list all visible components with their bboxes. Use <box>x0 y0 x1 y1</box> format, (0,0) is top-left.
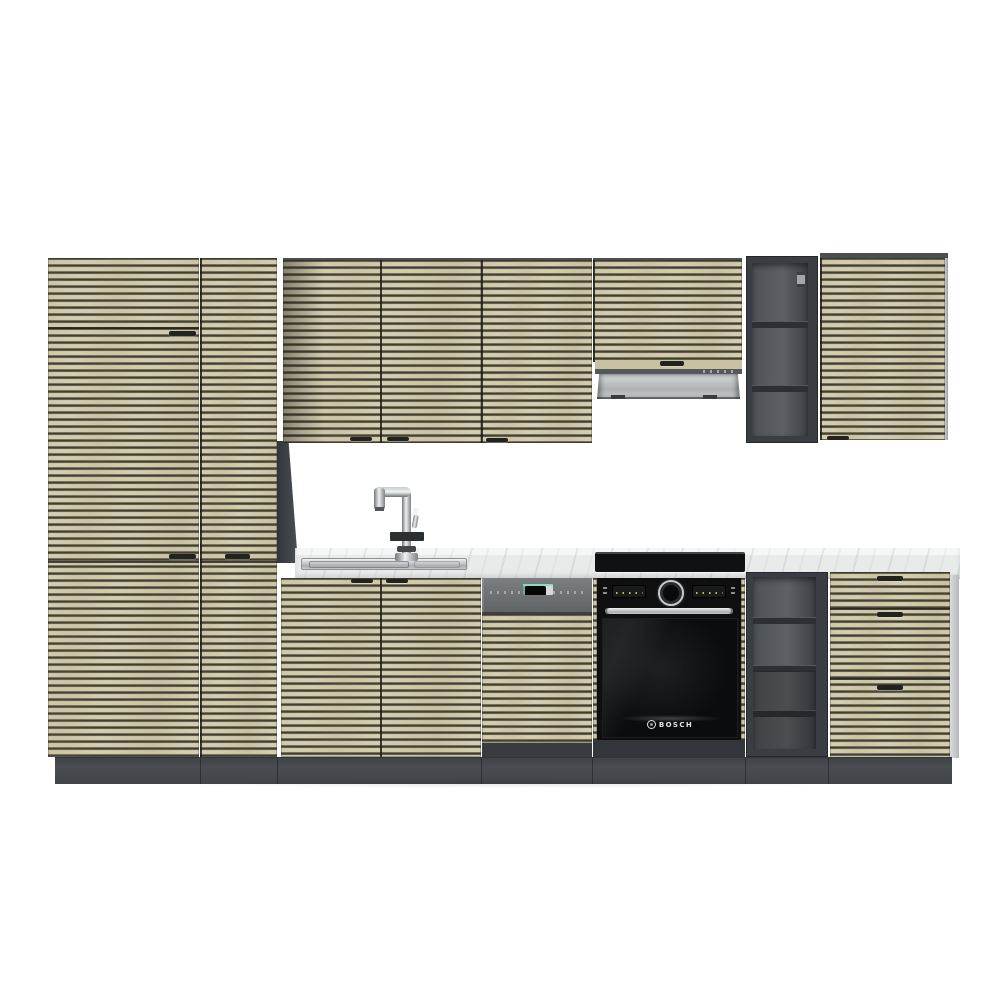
shelf-interior <box>752 263 808 436</box>
door-seam <box>380 578 382 757</box>
oven-door-glass: BOSCH <box>602 618 738 738</box>
shelf-interior <box>753 577 816 749</box>
door-seam <box>380 260 382 443</box>
drawer-handle <box>877 576 903 581</box>
door-handle <box>386 579 408 583</box>
shelf-hinge-plate <box>797 272 805 287</box>
door-handle <box>169 554 196 559</box>
shelf-shadow-overlay <box>753 671 816 749</box>
door-handle <box>350 437 372 441</box>
hood-foot <box>703 395 717 399</box>
oven-display-right <box>692 585 726 598</box>
faucet <box>366 470 442 564</box>
oven-housing-right-trim <box>741 578 745 740</box>
hood-control-buttons <box>703 370 737 373</box>
door-seam <box>48 561 199 563</box>
dishwasher-kick-strip <box>482 743 592 757</box>
oven-side-buttons <box>731 587 735 596</box>
door-seam <box>200 561 277 563</box>
drawer-handle <box>877 612 903 617</box>
oven-display-left <box>612 585 646 598</box>
wall-cabinet-right <box>820 253 948 440</box>
oven-brand-logo: BOSCH <box>603 720 737 729</box>
shelf-board <box>753 617 816 624</box>
kitchen-product-photo: BOSCH <box>0 0 1000 1000</box>
tall-cabinet-wide <box>48 258 199 757</box>
base-open-shelf-unit <box>746 572 828 757</box>
door-handle <box>169 331 196 336</box>
oven-door-handle <box>605 608 733 614</box>
cabinet-side-panel <box>945 258 948 440</box>
drawer-handle <box>877 685 903 690</box>
bosch-circle-icon <box>647 720 656 729</box>
oven-side-buttons <box>603 587 607 596</box>
wall-open-shelf-unit <box>746 256 818 443</box>
wall-cabinet-sink <box>283 258 481 443</box>
sink-base-cabinet <box>281 578 481 757</box>
tall-cabinet-narrow <box>200 258 277 757</box>
cooktop-hob <box>595 552 745 572</box>
dishwasher-furniture-panel <box>482 614 592 743</box>
tall-cabinet-side-panel <box>277 441 298 563</box>
dishwasher-control-panel <box>482 578 592 614</box>
oven-housing: BOSCH <box>593 578 745 757</box>
hood-telescopic-visor <box>597 374 740 399</box>
dishwasher-display <box>523 584 553 595</box>
bosch-logo-text: BOSCH <box>659 721 693 729</box>
dishwasher <box>482 578 592 757</box>
door-handle <box>225 554 250 559</box>
door-handle <box>486 438 508 442</box>
built-in-oven: BOSCH <box>597 578 741 740</box>
hood-control-band <box>595 369 742 374</box>
hood-foot <box>611 395 625 399</box>
wall-cabinet-mid <box>481 258 592 443</box>
wall-cabinet-right-door <box>820 258 945 440</box>
oven-control-knob <box>658 580 684 606</box>
door-handle <box>387 437 409 441</box>
door-handle <box>827 436 849 440</box>
floor-shadow <box>50 779 955 793</box>
shelf-board <box>752 385 808 392</box>
shelf-board <box>752 321 808 328</box>
door-seam <box>48 327 199 329</box>
door-handle <box>351 579 373 583</box>
drawer-base-cabinet <box>830 572 950 760</box>
wall-cabinet-hood <box>593 258 742 362</box>
drawer-seam <box>830 678 950 680</box>
oven-housing-base <box>593 740 745 757</box>
cast-shadow <box>283 260 325 443</box>
drawer-seam <box>830 608 950 610</box>
hood-handle <box>660 361 684 366</box>
cabinet-side-panel-right <box>950 575 959 758</box>
